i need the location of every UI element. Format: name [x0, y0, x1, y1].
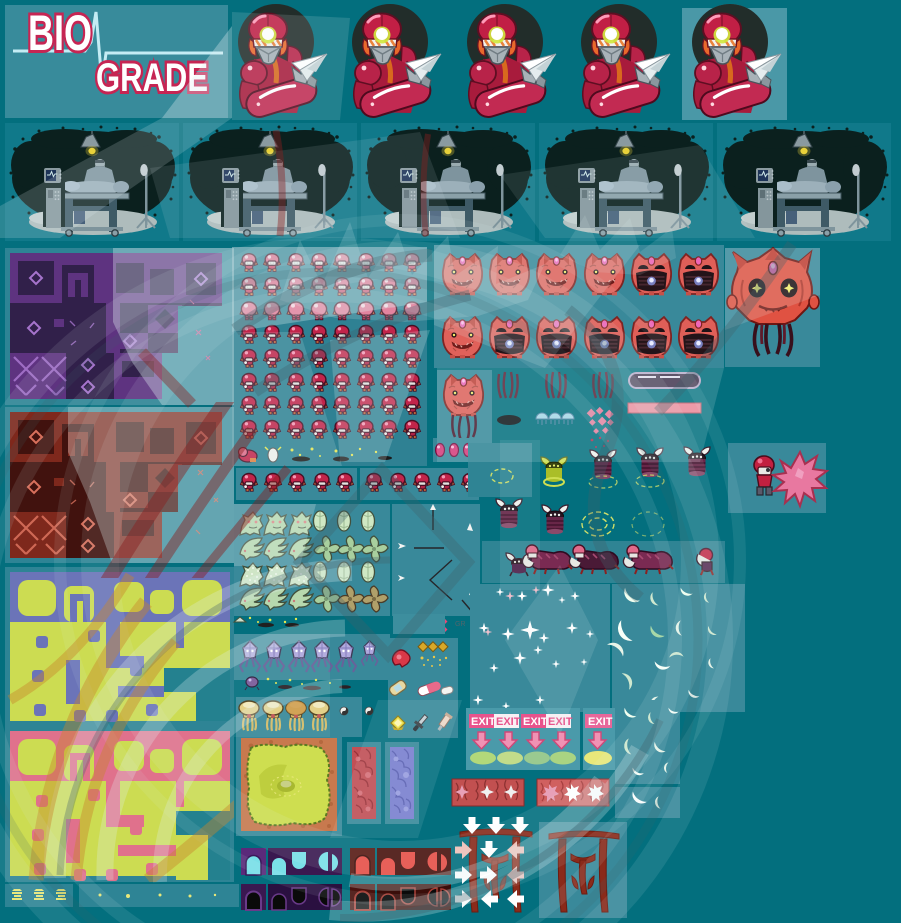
svg-text:BIO: BIO [28, 5, 92, 61]
svg-text:EXIT: EXIT [496, 716, 521, 728]
svg-text:EXIT: EXIT [523, 716, 548, 728]
svg-text:EXIT: EXIT [588, 716, 613, 728]
svg-text:EXIT: EXIT [471, 716, 496, 728]
svg-text:GR: GR [455, 621, 466, 628]
